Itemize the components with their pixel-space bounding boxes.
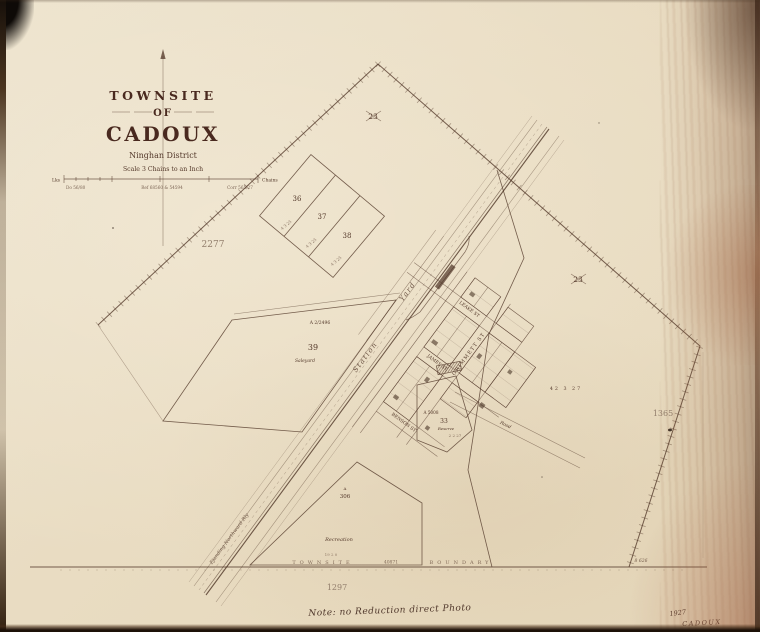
plan-annotations: 2277 1365 1297 TOWNSITE 40871 BOUNDARY 8…	[202, 240, 674, 592]
title-district: Ninghan District	[129, 151, 198, 160]
north-arrowhead	[160, 49, 165, 59]
plan-number-west: 2277	[202, 240, 225, 250]
boundary-number: 40871	[384, 560, 398, 566]
lot23-east-area: 42 3 27	[550, 386, 582, 392]
corner-area-label: 8 626	[635, 558, 648, 564]
handwritten-notes: Note: no Reduction direct Photo 1927 CAD…	[307, 603, 721, 628]
station-loop	[406, 236, 469, 320]
boundary-word-right: BOUNDARY	[430, 560, 493, 566]
boundary-word-left: TOWNSITE	[292, 560, 353, 566]
scale-text: Scale 3 Chains to an Inch	[123, 166, 203, 173]
lot36-area: 4 3 25	[280, 219, 293, 231]
plan-number-east: 1365	[653, 409, 673, 418]
town-lot-rows	[383, 278, 557, 462]
scale-left-label: Lks	[52, 178, 61, 184]
scale-bar: Lks Chains Do 56/80 Ref 68560 & 54594 Co…	[52, 175, 278, 190]
yard-label: Yard	[398, 280, 418, 303]
west-corner-line	[98, 325, 163, 421]
lot306-number: 306	[340, 494, 351, 500]
lot37-number: 37	[318, 213, 327, 221]
title-townsite: TOWNSITE	[109, 88, 216, 103]
road-label: Road	[498, 419, 512, 430]
lot33-name: Reserve	[437, 426, 455, 431]
ref-left: Do 56/80	[66, 185, 86, 190]
plan-number-south: 1297	[327, 583, 347, 592]
title-of: OF	[153, 108, 173, 119]
survey-map: TOWNSITE OF CADOUX Ninghan District Scal…	[0, 0, 760, 632]
lot306-name: Recreation	[324, 537, 353, 543]
lot39-reserve: A 2/2496	[309, 320, 331, 326]
road-line	[234, 293, 400, 314]
title-name: CADOUX	[106, 122, 220, 146]
handwritten-name: CADOUX	[682, 618, 722, 628]
ref-centre: Ref 68560 & 54594	[141, 185, 183, 190]
lot33-number: 33	[440, 418, 448, 425]
lot39-number: 39	[308, 343, 318, 352]
lot33-area: 2 2 27	[449, 433, 462, 438]
lot-labels: 36 37 38 4 3 25 4 3 25 4 3 25 A 2/2496 3…	[280, 111, 586, 557]
lot39-name: Saleyard	[295, 358, 315, 364]
paper-specks	[112, 122, 672, 478]
survey-blocks	[98, 155, 703, 567]
lot38-area: 4 3 25	[330, 255, 343, 267]
lot306-prefix: A	[343, 486, 347, 491]
handwritten-year: 1927	[669, 608, 687, 618]
recreation-block	[250, 462, 422, 565]
ref-right: Corr 565/27	[227, 185, 253, 190]
town-grid: Station Yard GRIMMETT ST JAMES ST LEAKE …	[196, 230, 566, 632]
lot38-number: 38	[343, 232, 352, 240]
north-arrow	[112, 49, 214, 246]
lot33-reserve: A 5008	[422, 410, 438, 415]
lot36-number: 36	[293, 195, 302, 203]
lot306-area: 19 2 0	[325, 552, 338, 557]
scale-right-label: Chains	[262, 178, 278, 184]
handwritten-note: Note: no Reduction direct Photo	[307, 603, 471, 619]
lot37-area: 4 3 25	[305, 237, 318, 249]
scanned-survey-plan: TOWNSITE OF CADOUX Ninghan District Scal…	[0, 0, 760, 632]
